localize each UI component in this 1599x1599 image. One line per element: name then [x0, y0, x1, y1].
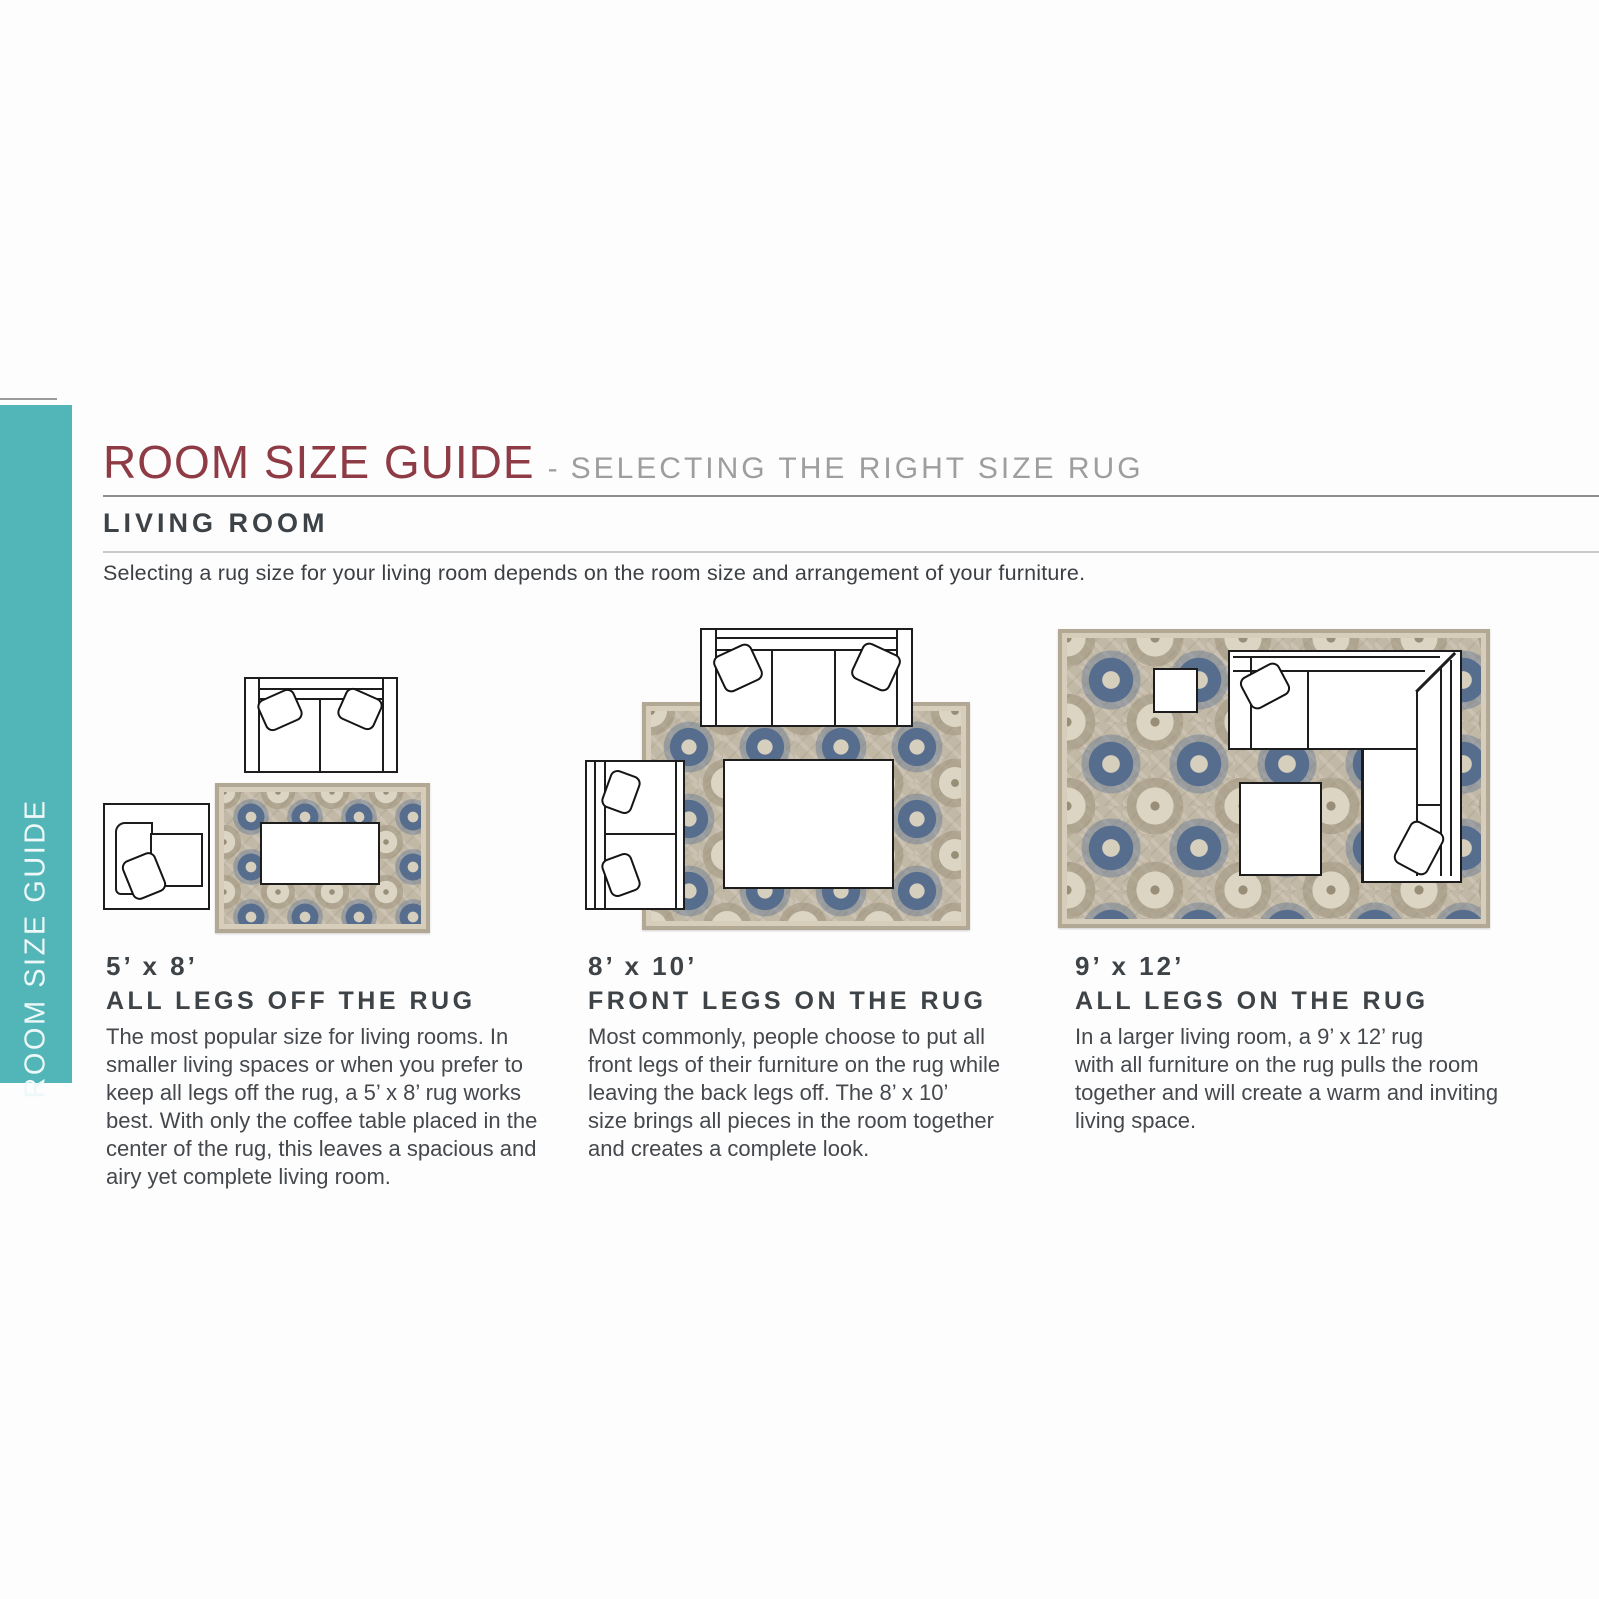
page-title: ROOM SIZE GUIDE - SELECTING THE RIGHT SI… — [103, 435, 1144, 489]
section-body: The most popular size for living rooms. … — [106, 1023, 566, 1191]
legs-heading: FRONT LEGS ON THE RUG — [588, 987, 1058, 1016]
subtitle-text: SELECTING THE RIGHT SIZE RUG — [571, 452, 1144, 486]
legs-heading: ALL LEGS OFF THE RUG — [106, 987, 566, 1016]
title-text: ROOM SIZE GUIDE — [103, 435, 535, 489]
sofa-icon — [700, 628, 913, 727]
coffee-table-icon — [1239, 782, 1322, 876]
sofa-icon — [244, 677, 398, 773]
sidebar-label: ROOM SIZE GUIDE — [0, 833, 72, 1063]
size-heading: 8’ x 10’ — [588, 951, 1058, 982]
legs-heading: ALL LEGS ON THE RUG — [1075, 987, 1545, 1016]
section-8x10: 8’ x 10’ FRONT LEGS ON THE RUG Most comm… — [588, 951, 1058, 1163]
section-9x12: 9’ x 12’ ALL LEGS ON THE RUG In a larger… — [1075, 951, 1545, 1135]
intro-description: Selecting a rug size for your living roo… — [103, 561, 1085, 586]
section-heading: LIVING ROOM — [103, 508, 329, 539]
sectional-backline — [1450, 660, 1452, 876]
room-size-guide-infographic: ROOM SIZE GUIDE ROOM SIZE GUIDE - SELECT… — [0, 0, 1599, 1599]
sectional-seat-divider — [1416, 804, 1442, 806]
section-5x8: 5’ x 8’ ALL LEGS OFF THE RUG The most po… — [106, 951, 566, 1191]
page-edge-mark — [0, 398, 57, 400]
section-body: In a larger living room, a 9’ x 12’ rug … — [1075, 1023, 1545, 1135]
coffee-table-icon — [260, 822, 380, 885]
title-dash: - — [548, 452, 558, 486]
sectional-seat-divider — [1307, 670, 1309, 748]
sectional-edge — [1361, 748, 1364, 883]
coffee-table-icon — [723, 759, 894, 889]
sectional-seat-front — [1362, 748, 1418, 750]
sectional-backline — [1233, 656, 1440, 658]
sidebar-label-text: ROOM SIZE GUIDE — [20, 798, 53, 1098]
size-heading: 9’ x 12’ — [1075, 951, 1545, 982]
size-heading: 5’ x 8’ — [106, 951, 566, 982]
sidebar-banner: ROOM SIZE GUIDE — [0, 405, 72, 1083]
section-body: Most commonly, people choose to put all … — [588, 1023, 1058, 1163]
side-table-icon — [1153, 668, 1198, 713]
title-divider — [103, 495, 1599, 497]
loveseat-icon — [585, 760, 685, 910]
section-divider — [103, 551, 1599, 553]
